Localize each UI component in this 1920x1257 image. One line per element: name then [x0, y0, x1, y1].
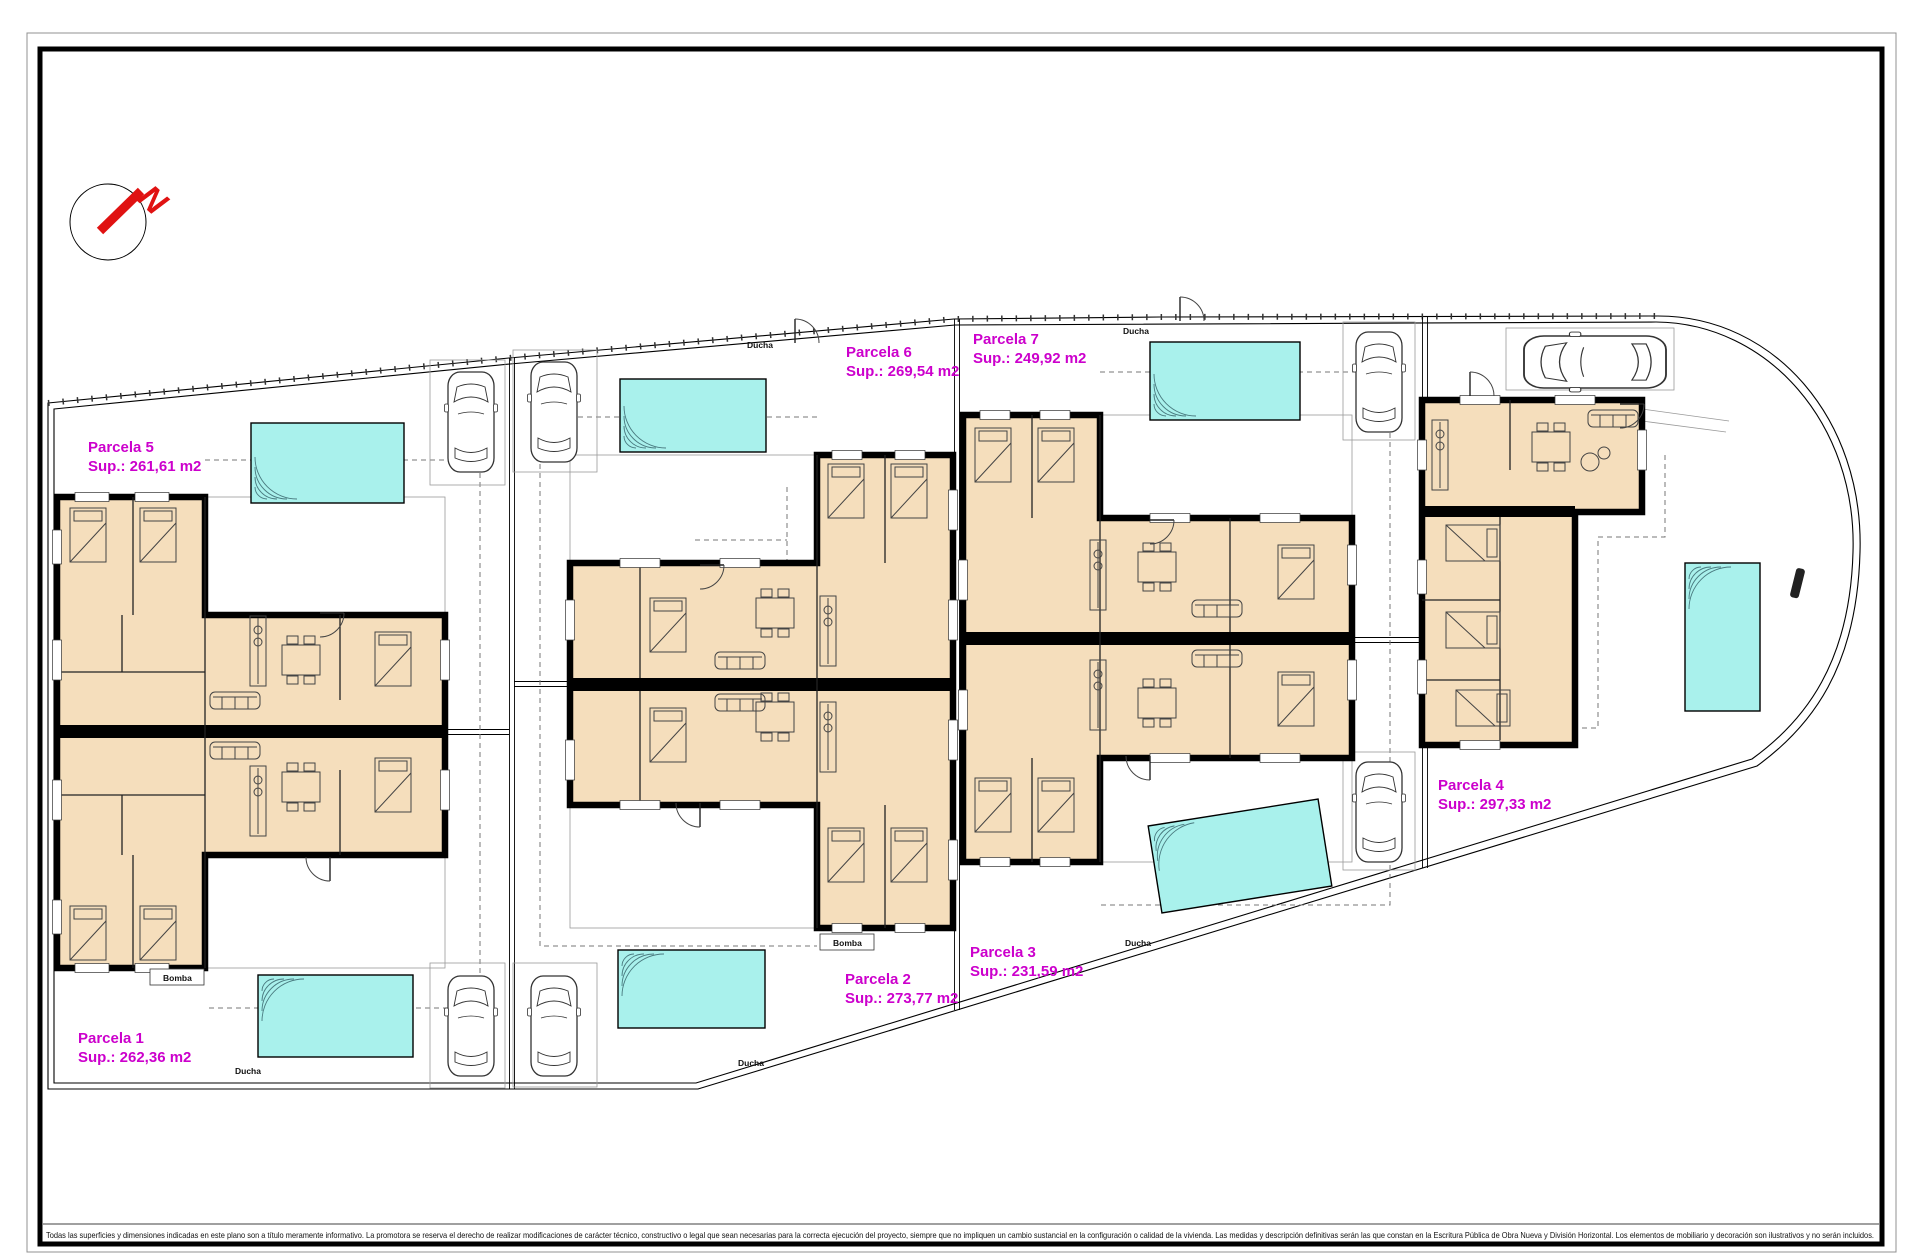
parcel-6-sup: Sup.: 269,54 m2	[846, 363, 959, 380]
building-parcelas-6-2	[566, 451, 958, 933]
door-icon	[306, 857, 330, 881]
shower-label: Ducha	[1123, 326, 1149, 336]
parcel-6-name: Parcela 6	[846, 344, 912, 361]
parcel-3-sup: Sup.: 231,59 m2	[970, 963, 1083, 980]
car-icon	[1524, 332, 1666, 392]
disclaimer-text: Todas las superficies y dimensiones indi…	[46, 1230, 1874, 1240]
car-icon	[445, 976, 498, 1076]
car-icon	[445, 372, 498, 472]
parcel-4-sup: Sup.: 297,33 m2	[1438, 796, 1551, 813]
car-icon	[528, 976, 581, 1076]
site-plan: Todas las superficies y dimensiones indi…	[0, 0, 1920, 1257]
car-icon	[528, 362, 581, 462]
interior-thick-wall	[1422, 506, 1575, 517]
car-icon	[1353, 762, 1406, 862]
north-label: N	[131, 178, 176, 224]
parcel-2-name: Parcela 2	[845, 971, 911, 988]
pool-parcela-5	[251, 423, 404, 503]
parcel-1-name: Parcela 1	[78, 1030, 144, 1047]
parcel-5-sup: Sup.: 261,61 m2	[88, 458, 201, 475]
shower-label: Ducha	[747, 340, 773, 350]
pump-box: Bomba	[150, 969, 204, 985]
shower-label: Ducha	[1125, 938, 1151, 948]
parcel-3-name: Parcela 3	[970, 944, 1036, 961]
pump-label: Bomba	[833, 938, 862, 948]
parcel-4-name: Parcela 4	[1438, 777, 1505, 794]
north-needle	[100, 191, 141, 231]
building-parcela-4	[1418, 396, 1647, 750]
outdoor-shower-icon	[1789, 567, 1805, 598]
pool-parcela-2	[618, 950, 765, 1028]
party-wall	[963, 632, 1352, 645]
parcel-7-name: Parcela 7	[973, 331, 1039, 348]
pool-parcela-4	[1685, 563, 1760, 711]
party-wall	[57, 725, 445, 738]
pool-parcela-6	[620, 379, 766, 452]
gate-door-icon	[1470, 372, 1494, 396]
pump-label: Bomba	[163, 973, 192, 983]
building-parcelas-5-1	[53, 493, 450, 973]
building-parcelas-7-3	[959, 411, 1357, 867]
north-arrow: N	[70, 178, 175, 260]
shower-label: Ducha	[738, 1058, 764, 1068]
parcel-1-sup: Sup.: 262,36 m2	[78, 1049, 191, 1066]
pool-parcela-7	[1150, 342, 1300, 420]
parcel-7-sup: Sup.: 249,92 m2	[973, 350, 1086, 367]
car-icon	[1353, 332, 1406, 432]
pool-parcela-1	[258, 975, 413, 1057]
shower-label: Ducha	[235, 1066, 261, 1076]
party-wall	[570, 678, 953, 691]
building-outline	[570, 455, 953, 928]
parcel-5-name: Parcela 5	[88, 439, 154, 456]
parcel-2-sup: Sup.: 273,77 m2	[845, 990, 958, 1007]
pump-box: Bomba	[820, 934, 874, 950]
